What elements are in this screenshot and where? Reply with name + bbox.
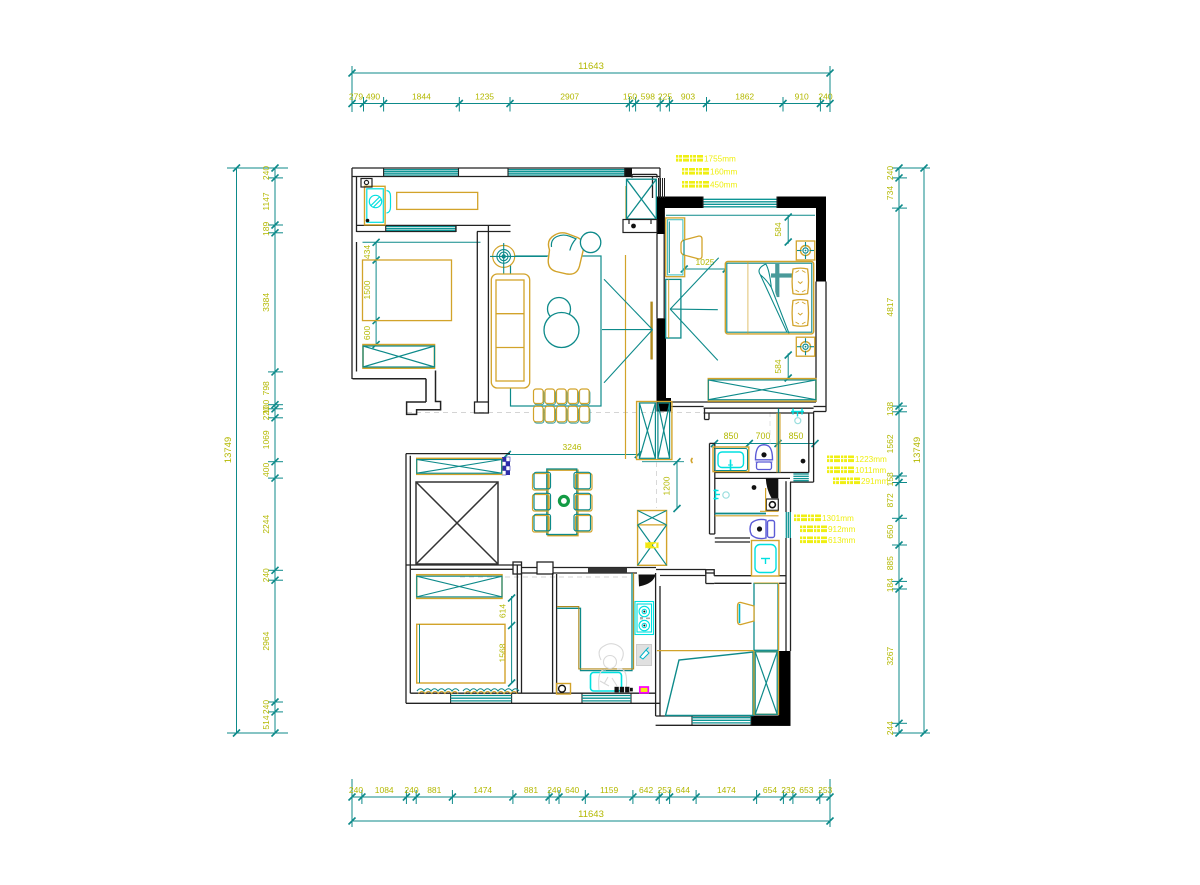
svg-text:279: 279 bbox=[349, 92, 363, 102]
svg-text:700: 700 bbox=[756, 431, 771, 441]
svg-text:13749: 13749 bbox=[912, 437, 923, 463]
svg-text:640: 640 bbox=[565, 785, 579, 795]
svg-text:3246: 3246 bbox=[563, 442, 582, 452]
svg-text:240: 240 bbox=[818, 92, 832, 102]
svg-text:11643: 11643 bbox=[578, 809, 604, 820]
svg-text:584: 584 bbox=[773, 359, 783, 373]
svg-text:642: 642 bbox=[639, 785, 653, 795]
svg-text:1011mm: 1011mm bbox=[855, 466, 886, 475]
svg-text:240: 240 bbox=[261, 166, 271, 180]
svg-text:2907: 2907 bbox=[560, 92, 579, 102]
svg-text:614: 614 bbox=[498, 604, 508, 618]
svg-text:4817: 4817 bbox=[885, 297, 895, 316]
svg-text:653: 653 bbox=[799, 785, 813, 795]
svg-text:881: 881 bbox=[524, 785, 538, 795]
svg-text:225: 225 bbox=[658, 92, 672, 102]
svg-text:184: 184 bbox=[885, 578, 895, 592]
svg-text:1568: 1568 bbox=[498, 643, 508, 662]
svg-text:13749: 13749 bbox=[223, 437, 234, 463]
svg-text:1084: 1084 bbox=[375, 785, 394, 795]
svg-text:734: 734 bbox=[885, 186, 895, 200]
svg-text:240: 240 bbox=[349, 785, 363, 795]
svg-text:584: 584 bbox=[773, 222, 783, 236]
svg-text:490: 490 bbox=[366, 92, 380, 102]
svg-text:150: 150 bbox=[623, 92, 637, 102]
svg-text:1755mm: 1755mm bbox=[704, 155, 736, 164]
svg-text:434: 434 bbox=[362, 245, 372, 259]
svg-text:400: 400 bbox=[261, 463, 271, 477]
svg-text:1301mm: 1301mm bbox=[822, 514, 854, 523]
svg-text:598: 598 bbox=[641, 92, 655, 102]
svg-text:2244: 2244 bbox=[261, 514, 271, 533]
svg-text:1147: 1147 bbox=[261, 192, 271, 211]
svg-text:253: 253 bbox=[818, 785, 832, 795]
svg-text:240: 240 bbox=[261, 700, 271, 714]
svg-text:189: 189 bbox=[261, 222, 271, 236]
svg-text:798: 798 bbox=[261, 381, 271, 395]
svg-text:232: 232 bbox=[781, 785, 795, 795]
svg-text:850: 850 bbox=[789, 431, 804, 441]
svg-text:450mm: 450mm bbox=[710, 181, 737, 190]
svg-text:240: 240 bbox=[547, 785, 561, 795]
svg-text:11643: 11643 bbox=[578, 61, 604, 72]
svg-text:644: 644 bbox=[676, 785, 690, 795]
svg-text:1862: 1862 bbox=[735, 92, 754, 102]
svg-text:160mm: 160mm bbox=[710, 168, 737, 177]
svg-text:240: 240 bbox=[261, 568, 271, 582]
svg-text:1474: 1474 bbox=[473, 785, 492, 795]
svg-text:650: 650 bbox=[885, 524, 895, 538]
svg-text:240: 240 bbox=[404, 785, 418, 795]
svg-text:872: 872 bbox=[885, 493, 895, 507]
svg-text:1200: 1200 bbox=[662, 476, 672, 495]
svg-text:291mm: 291mm bbox=[861, 477, 888, 486]
svg-text:3384: 3384 bbox=[261, 293, 271, 312]
svg-text:220: 220 bbox=[261, 406, 271, 420]
svg-text:1844: 1844 bbox=[412, 92, 431, 102]
svg-text:613mm: 613mm bbox=[828, 536, 855, 545]
svg-text:514: 514 bbox=[261, 715, 271, 729]
svg-text:138: 138 bbox=[885, 402, 895, 416]
svg-text:1223mm: 1223mm bbox=[855, 455, 887, 464]
svg-text:1562: 1562 bbox=[885, 434, 895, 453]
svg-text:850: 850 bbox=[724, 431, 739, 441]
svg-text:600: 600 bbox=[362, 326, 372, 340]
svg-text:654: 654 bbox=[763, 785, 777, 795]
svg-text:253: 253 bbox=[658, 785, 672, 795]
svg-text:1235: 1235 bbox=[475, 92, 494, 102]
svg-text:1500: 1500 bbox=[362, 280, 372, 299]
svg-text:885: 885 bbox=[885, 556, 895, 570]
svg-text:240: 240 bbox=[885, 166, 895, 180]
svg-text:912mm: 912mm bbox=[828, 525, 855, 534]
svg-text:910: 910 bbox=[795, 92, 809, 102]
svg-text:1159: 1159 bbox=[600, 785, 619, 795]
svg-text:1069: 1069 bbox=[261, 430, 271, 449]
svg-text:903: 903 bbox=[681, 92, 695, 102]
svg-text:2964: 2964 bbox=[261, 631, 271, 650]
svg-text:1474: 1474 bbox=[717, 785, 736, 795]
svg-text:881: 881 bbox=[427, 785, 441, 795]
svg-text:3267: 3267 bbox=[885, 646, 895, 665]
svg-text:244: 244 bbox=[885, 721, 895, 735]
